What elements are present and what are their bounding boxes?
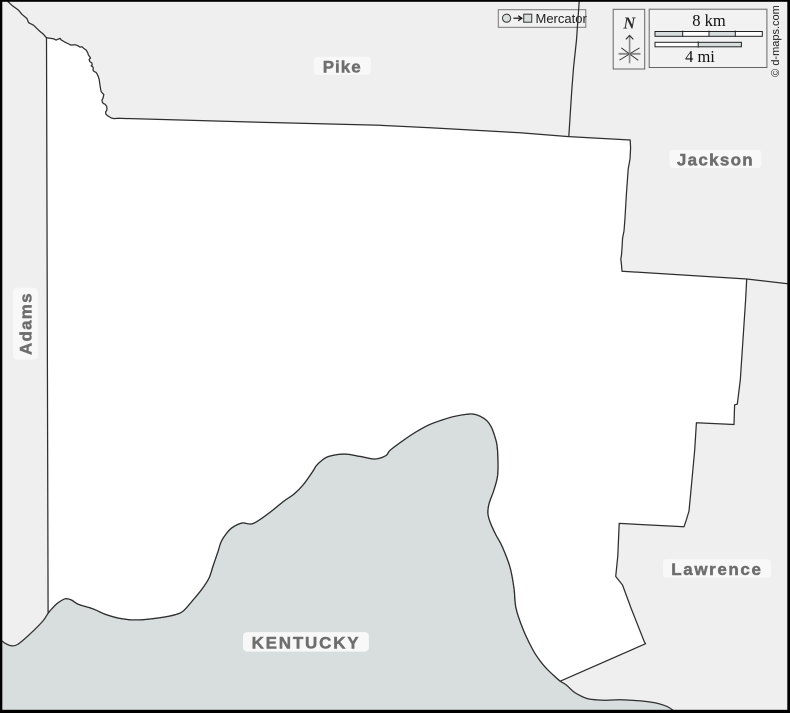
svg-text:Lawrence: Lawrence	[671, 560, 762, 579]
svg-text:8 km: 8 km	[692, 11, 726, 30]
svg-text:4 mi: 4 mi	[685, 47, 715, 66]
svg-text:KENTUCKY: KENTUCKY	[252, 633, 361, 652]
svg-text:N: N	[622, 14, 636, 33]
svg-text:Pike: Pike	[323, 57, 362, 76]
svg-text:Adams: Adams	[17, 292, 36, 355]
svg-text:Mercator: Mercator	[536, 11, 588, 26]
svg-text:Jackson: Jackson	[677, 151, 754, 170]
svg-text:© d-maps.com: © d-maps.com	[770, 5, 782, 77]
